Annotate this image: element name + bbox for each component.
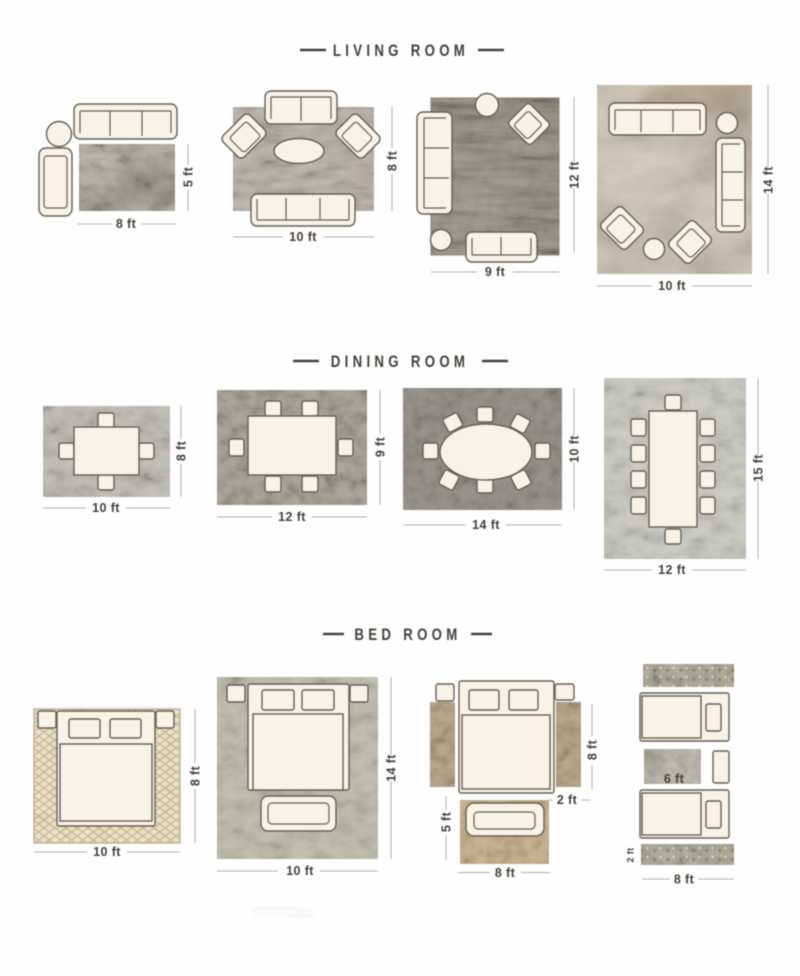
svg-text:LIVING ROOM: LIVING ROOM — [333, 42, 469, 61]
svg-text:12 ft: 12 ft — [568, 161, 582, 189]
svg-text:9 ft: 9 ft — [374, 436, 388, 457]
svg-text:10 ft: 10 ft — [286, 864, 314, 878]
svg-text:10 ft: 10 ft — [289, 230, 317, 244]
svg-text:DINING ROOM: DINING ROOM — [331, 353, 469, 372]
svg-text:8 ft: 8 ft — [175, 440, 189, 461]
svg-text:5 ft: 5 ft — [440, 811, 454, 832]
svg-text:12 ft: 12 ft — [278, 510, 306, 524]
svg-text:8 ft: 8 ft — [586, 739, 600, 760]
svg-text:14 ft: 14 ft — [472, 518, 500, 532]
svg-text:10 ft: 10 ft — [92, 501, 120, 515]
svg-text:8 ft: 8 ft — [116, 217, 137, 231]
svg-text:5 ft: 5 ft — [182, 166, 196, 187]
svg-text:BED ROOM: BED ROOM — [354, 626, 461, 645]
svg-text:14 ft: 14 ft — [762, 166, 776, 194]
svg-text:8 ft: 8 ft — [386, 150, 400, 171]
svg-text:6 ft: 6 ft — [664, 772, 685, 786]
svg-text:12 ft: 12 ft — [658, 563, 686, 577]
svg-text:15 ft: 15 ft — [752, 454, 766, 482]
svg-text:2 ft: 2 ft — [626, 847, 636, 862]
svg-text:9 ft: 9 ft — [485, 265, 506, 279]
svg-text:14 ft: 14 ft — [385, 754, 399, 782]
svg-text:8 ft: 8 ft — [495, 866, 516, 880]
svg-text:10 ft: 10 ft — [658, 279, 686, 293]
svg-text:8 ft: 8 ft — [674, 873, 695, 887]
svg-text:2 ft: 2 ft — [557, 793, 578, 807]
svg-text:10 ft: 10 ft — [93, 845, 121, 859]
svg-text:8 ft: 8 ft — [189, 765, 203, 786]
svg-text:10 ft: 10 ft — [568, 435, 582, 463]
